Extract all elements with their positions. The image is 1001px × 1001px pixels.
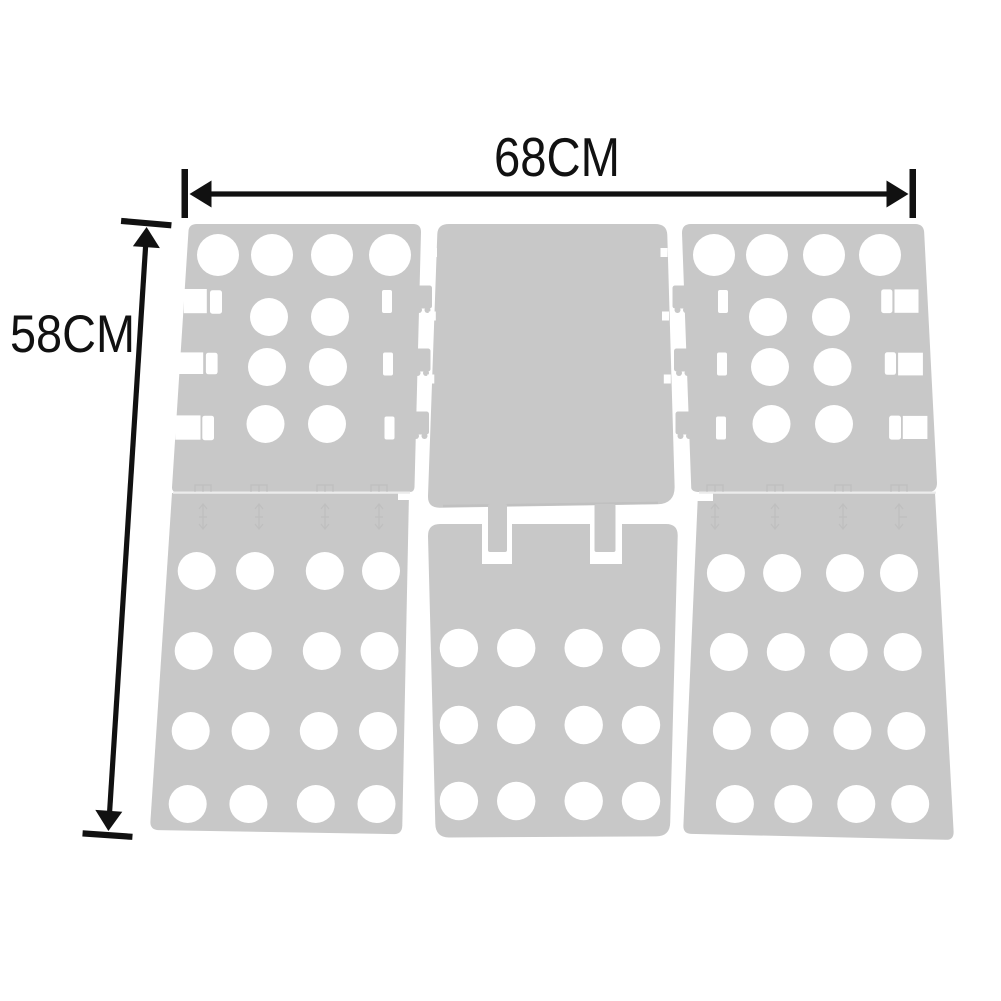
svg-text:68CM: 68CM <box>494 126 620 188</box>
svg-text:58CM: 58CM <box>10 305 135 364</box>
